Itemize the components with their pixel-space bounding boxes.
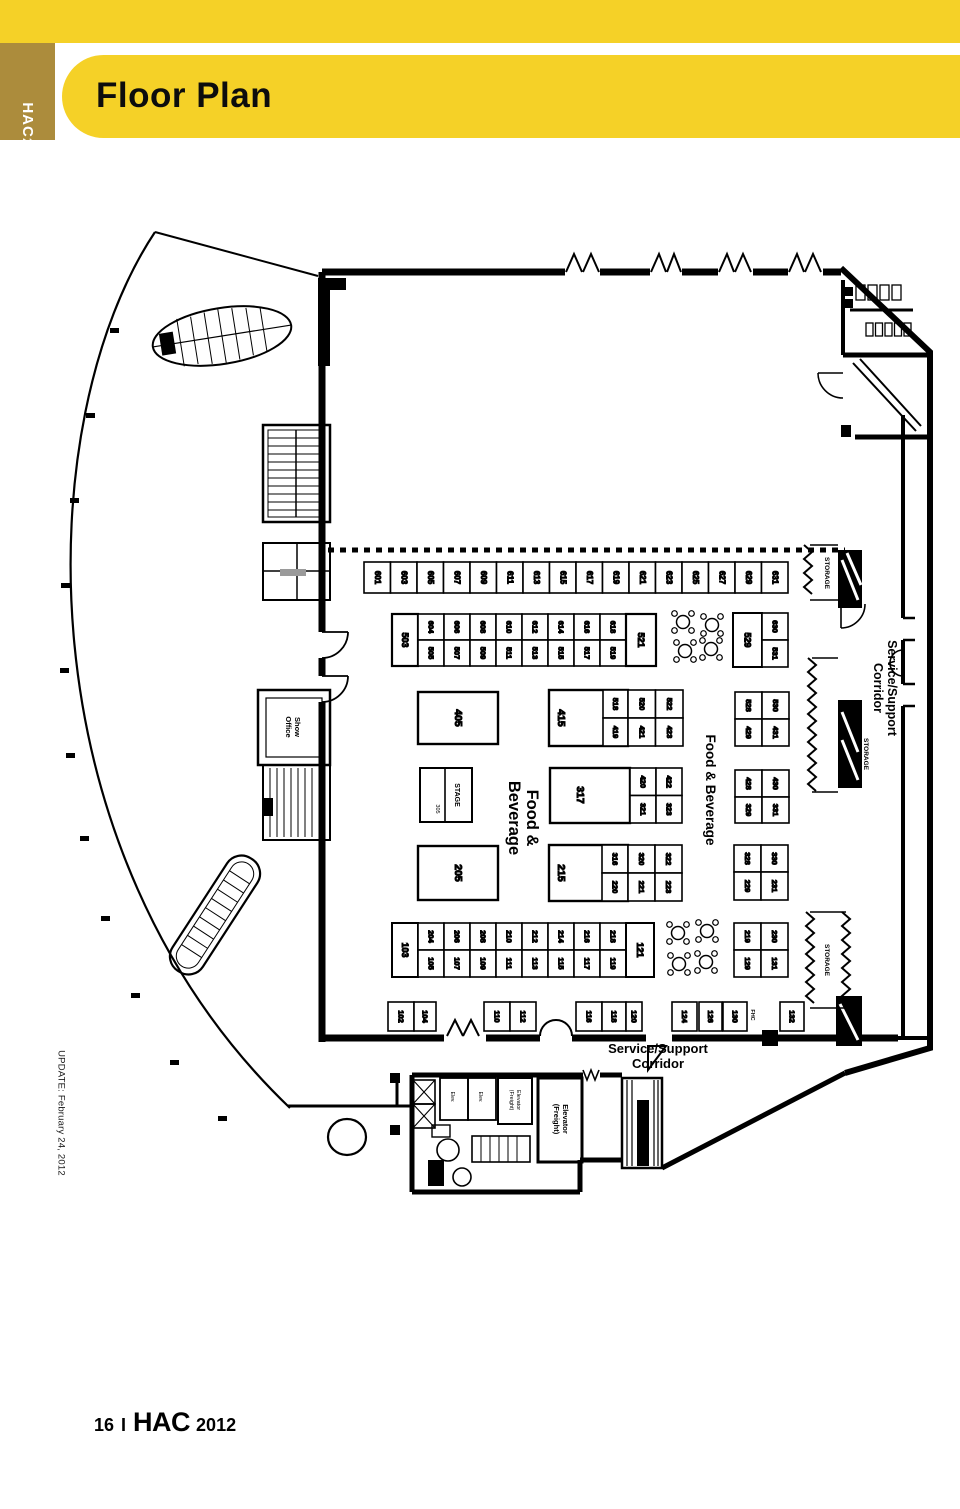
booth-number: 522 bbox=[665, 698, 674, 711]
machinery bbox=[428, 1125, 530, 1186]
booth-number: 630 bbox=[771, 620, 780, 633]
booth-number: 606 bbox=[453, 621, 462, 634]
booth-number: 231 bbox=[770, 880, 779, 893]
booth-number: 230 bbox=[770, 930, 779, 943]
chair-icon bbox=[696, 920, 702, 926]
booth-number: 617 bbox=[585, 571, 594, 585]
svg-text:Beverage: Beverage bbox=[505, 781, 523, 855]
table-icon bbox=[673, 958, 686, 971]
wall-column-tick bbox=[170, 1060, 179, 1065]
chair-icon bbox=[696, 937, 702, 943]
booth-number: 415 bbox=[555, 709, 567, 727]
booth-number: 621 bbox=[638, 571, 647, 585]
wall-column-tick bbox=[66, 753, 75, 758]
booth-number: 223 bbox=[664, 881, 673, 894]
booth-number: 221 bbox=[637, 881, 646, 894]
svg-text:Elevator: Elevator bbox=[515, 1090, 521, 1110]
booth-number: 613 bbox=[532, 571, 541, 585]
booth-number: 216 bbox=[583, 930, 592, 943]
booth-number: 616 bbox=[583, 621, 592, 634]
booth-number: 431 bbox=[771, 726, 780, 739]
wall-column-tick bbox=[61, 583, 70, 588]
table-icon bbox=[705, 643, 718, 656]
elevator-freight-label: Elevator (Freight) bbox=[552, 1104, 570, 1135]
booth-number: 104 bbox=[421, 1010, 430, 1023]
booth-number: 121 bbox=[635, 942, 645, 957]
chair-icon bbox=[685, 970, 691, 976]
booth-number: 420 bbox=[639, 775, 648, 788]
booth-number: 112 bbox=[519, 1010, 528, 1022]
booth-number: 605 bbox=[426, 571, 435, 585]
storage-zigzag bbox=[806, 912, 814, 1003]
ne-rooms bbox=[818, 280, 930, 437]
booth-number: 423 bbox=[665, 726, 674, 739]
wall-column-tick bbox=[60, 668, 69, 673]
chair-icon bbox=[689, 611, 695, 617]
chair-icon bbox=[667, 939, 673, 945]
booth-number: 604 bbox=[427, 621, 436, 634]
chair-icon bbox=[684, 922, 690, 928]
chair-icon bbox=[689, 628, 695, 634]
booth-number: 330 bbox=[770, 852, 779, 865]
booth-number: 219 bbox=[743, 930, 752, 943]
food-beverage-main-label: Food & Beverage bbox=[505, 781, 541, 855]
booth-number: 117 bbox=[583, 957, 592, 969]
door-coil bbox=[583, 1070, 599, 1080]
wall-column-tick bbox=[80, 836, 89, 841]
table-icon bbox=[700, 956, 713, 969]
booth-number: 629 bbox=[744, 571, 753, 585]
booth-number: 521 bbox=[636, 632, 646, 647]
bottom-service-block bbox=[390, 1073, 662, 1192]
booth-number: 531 bbox=[771, 647, 780, 660]
booth-number: 316 bbox=[611, 853, 620, 866]
svg-text:(Freight): (Freight) bbox=[552, 1104, 561, 1135]
stage-label: STAGE bbox=[453, 783, 460, 807]
booth-number: 208 bbox=[479, 930, 488, 943]
svg-text:Food & Beverage: Food & Beverage bbox=[703, 734, 718, 846]
side-tab-year: 2012 bbox=[20, 138, 34, 166]
booth-number: 625 bbox=[691, 571, 700, 585]
booth-number: 631 bbox=[770, 571, 779, 585]
booth-number: 612 bbox=[531, 621, 540, 634]
chair-icon bbox=[674, 640, 680, 646]
booth-number: 113 bbox=[531, 957, 540, 969]
booth-number: 615 bbox=[558, 571, 567, 585]
storage-label-bottom: STORAGE bbox=[823, 944, 830, 977]
booth-number: 130 bbox=[731, 1010, 740, 1023]
booth-number: 619 bbox=[611, 571, 620, 585]
storage-label-mid: STORAGE bbox=[862, 738, 869, 771]
booth-number: 430 bbox=[771, 777, 780, 790]
booth-number: 419 bbox=[611, 726, 620, 739]
booth-number: 205 bbox=[452, 864, 464, 882]
booth-number: 124 bbox=[680, 1010, 689, 1023]
booth-number: 329 bbox=[744, 804, 753, 817]
floor-column-circle bbox=[328, 1119, 366, 1155]
svg-text:FHC: FHC bbox=[749, 1009, 755, 1020]
table-icon bbox=[677, 616, 690, 629]
booth-number: 405 bbox=[452, 709, 464, 727]
nw-pillar bbox=[318, 278, 346, 366]
lobby-curved-wall bbox=[71, 232, 412, 1108]
svg-text:STORAGE: STORAGE bbox=[862, 738, 869, 771]
corridor-bottom-line1: Service/Support bbox=[608, 1041, 708, 1056]
storage-vestibules bbox=[836, 550, 862, 1046]
chair-icon bbox=[717, 655, 723, 661]
chair-icon bbox=[667, 922, 673, 928]
booth-number: 218 bbox=[609, 930, 618, 943]
booth-number: 220 bbox=[611, 881, 620, 894]
corridor-bottom-label: Service/Support Corridor bbox=[608, 1041, 708, 1071]
booth-number: 131 bbox=[770, 957, 779, 970]
booth-number: 212 bbox=[531, 930, 540, 943]
svg-text:305: 305 bbox=[434, 804, 440, 813]
floor-plan: 6016036056076096116136156176196216236256… bbox=[0, 0, 960, 1509]
chair-icon bbox=[712, 968, 718, 974]
booth-number: 505 bbox=[427, 647, 436, 660]
booth-number: 317 bbox=[574, 786, 586, 804]
chair-icon bbox=[701, 614, 707, 620]
corridor-bottom-line2: Corridor bbox=[632, 1056, 684, 1071]
chair-icon bbox=[701, 631, 707, 637]
booth-number: 520 bbox=[637, 698, 646, 711]
booth-number: 129 bbox=[743, 957, 752, 970]
booth-number: 515 bbox=[557, 647, 566, 660]
footer-brand: HAC bbox=[133, 1407, 190, 1438]
chair-icon bbox=[700, 638, 706, 644]
chair-icon bbox=[713, 920, 719, 926]
booth-number: 331 bbox=[771, 804, 780, 817]
booth-number: 132 bbox=[788, 1010, 797, 1023]
booth bbox=[550, 768, 630, 823]
booth-number: 507 bbox=[453, 647, 462, 660]
storage-label-top: STORAGE bbox=[823, 557, 830, 590]
booth-number: 328 bbox=[743, 852, 752, 865]
svg-text:STORAGE: STORAGE bbox=[823, 557, 830, 590]
svg-text:Show: Show bbox=[293, 717, 302, 737]
wall-column-tick bbox=[110, 328, 119, 333]
stage-block bbox=[420, 768, 472, 822]
booth-number: 511 bbox=[505, 647, 514, 659]
booth-number: 519 bbox=[609, 647, 618, 660]
wall-column-tick bbox=[86, 413, 95, 418]
booth-number: 601 bbox=[373, 571, 382, 585]
booth-number: 323 bbox=[665, 803, 674, 816]
escalator-oval bbox=[148, 297, 295, 374]
chair-icon bbox=[713, 937, 719, 943]
footer-page-number: 16 bbox=[94, 1415, 114, 1436]
elevator-freight-small-label: Elevator (Freight) bbox=[508, 1090, 521, 1111]
booth-number: 509 bbox=[479, 647, 488, 660]
svg-text:Food &: Food & bbox=[523, 790, 541, 847]
svg-text:(Freight): (Freight) bbox=[508, 1090, 514, 1111]
booths-layer: 6016036056076096116136156176196216236256… bbox=[364, 562, 804, 1031]
wall-column-tick bbox=[218, 1116, 227, 1121]
table-icon bbox=[679, 645, 692, 658]
corridor-right-line2: Corridor bbox=[871, 663, 885, 713]
show-office-label: Show Office bbox=[284, 716, 302, 737]
storage-zigzag bbox=[842, 912, 850, 1003]
booth-number: 513 bbox=[531, 647, 540, 660]
chair-icon bbox=[672, 611, 678, 617]
food-beverage-right-label: Food & Beverage bbox=[703, 734, 718, 846]
booth-number: 421 bbox=[637, 726, 646, 739]
booth-number: 428 bbox=[744, 777, 753, 790]
booth-number: 422 bbox=[665, 775, 674, 788]
booth-number: 107 bbox=[453, 957, 462, 970]
chair-icon bbox=[700, 655, 706, 661]
chair-icon bbox=[668, 970, 674, 976]
svg-text:Elev.: Elev. bbox=[477, 1092, 483, 1103]
booth-number: 110 bbox=[493, 1010, 502, 1022]
booth-number: 518 bbox=[611, 698, 620, 711]
elev-small-label-2: Elev. bbox=[477, 1092, 483, 1103]
chair-icon bbox=[718, 631, 724, 637]
lobby-escalator bbox=[163, 849, 266, 981]
booth-number: 517 bbox=[583, 647, 592, 660]
booth-number: 322 bbox=[664, 853, 673, 866]
booth-number: 105 bbox=[427, 957, 436, 970]
chair-icon bbox=[717, 638, 723, 644]
booth-number: 120 bbox=[630, 1010, 639, 1023]
booth-number: 603 bbox=[399, 571, 408, 585]
svg-text:STAGE: STAGE bbox=[453, 783, 460, 807]
svg-text:Elev.: Elev. bbox=[449, 1092, 455, 1103]
top-yellow-band bbox=[0, 0, 960, 43]
booth-number: 623 bbox=[664, 571, 673, 585]
page-footer: 16 I HAC 2012 bbox=[94, 1407, 236, 1438]
svg-text:Office: Office bbox=[284, 716, 293, 737]
booth-number: 229 bbox=[743, 880, 752, 893]
booth-number: 627 bbox=[717, 571, 726, 585]
chair-icon bbox=[695, 951, 701, 957]
booth-number: 215 bbox=[555, 864, 567, 882]
booth-number: 608 bbox=[479, 621, 488, 634]
booth-number: 115 bbox=[557, 957, 566, 969]
booth-number: 119 bbox=[609, 957, 618, 969]
table-icon bbox=[672, 927, 685, 940]
booth-number: 503 bbox=[400, 632, 410, 647]
west-doors bbox=[322, 632, 348, 702]
wall-column-tick bbox=[70, 498, 79, 503]
chair-icon bbox=[668, 953, 674, 959]
chair-icon bbox=[684, 939, 690, 945]
corridor-right-line1: Service/Support bbox=[885, 640, 899, 737]
chair-icon bbox=[718, 614, 724, 620]
booth-number: 111 bbox=[505, 958, 514, 970]
booth-number: 321 bbox=[639, 803, 648, 816]
page-title: Floor Plan bbox=[96, 76, 272, 116]
booth-number: 530 bbox=[771, 699, 780, 712]
chair-icon bbox=[672, 628, 678, 634]
booth-number: 214 bbox=[557, 930, 566, 943]
elev-small-label-1: Elev. bbox=[449, 1092, 455, 1103]
chair-icon bbox=[685, 953, 691, 959]
booth-number: 126 bbox=[706, 1010, 715, 1023]
booth-number: 614 bbox=[557, 621, 566, 634]
chair-icon bbox=[712, 951, 718, 957]
side-tab-text: HAC2012 bbox=[18, 102, 36, 165]
booth-number: 118 bbox=[610, 1010, 619, 1022]
chair-icon bbox=[691, 657, 697, 663]
booth-number: 429 bbox=[744, 726, 753, 739]
booth-number: 204 bbox=[427, 930, 436, 943]
booth-number: 109 bbox=[479, 957, 488, 970]
footer-separator: I bbox=[121, 1415, 126, 1436]
booth-number: 103 bbox=[400, 942, 410, 957]
update-note: UPDATE: February 24, 2012 bbox=[56, 1050, 67, 1176]
footer-year: 2012 bbox=[196, 1415, 236, 1436]
stage-number-label: 305 bbox=[434, 804, 440, 813]
booth-number: 320 bbox=[637, 853, 646, 866]
escalator-down-block bbox=[622, 1078, 662, 1168]
booth-number: 206 bbox=[453, 930, 462, 943]
booth-number: 528 bbox=[744, 699, 753, 712]
wall-column-tick bbox=[101, 916, 110, 921]
booth-number: 607 bbox=[452, 571, 461, 585]
booth-number: 116 bbox=[585, 1010, 594, 1022]
svg-text:STORAGE: STORAGE bbox=[823, 944, 830, 977]
booth-number: 610 bbox=[505, 621, 514, 634]
booth-number: 210 bbox=[505, 930, 514, 943]
storage-zigzag bbox=[808, 658, 816, 791]
chair-icon bbox=[674, 657, 680, 663]
side-tab: HAC2012 bbox=[0, 43, 55, 140]
booth-number: 102 bbox=[397, 1010, 406, 1023]
table-icon bbox=[701, 925, 714, 938]
chair-icon bbox=[691, 640, 697, 646]
svg-text:Elevator: Elevator bbox=[561, 1104, 570, 1134]
fhc-label: FHC bbox=[749, 1009, 755, 1020]
booth-number: 611 bbox=[505, 571, 514, 584]
wall-column-tick bbox=[131, 993, 140, 998]
table-icon bbox=[706, 619, 719, 632]
booth-number: 618 bbox=[609, 621, 618, 634]
booth-number: 529 bbox=[743, 632, 753, 647]
corridor-right-label: Service/Support Corridor bbox=[871, 640, 899, 737]
booth-number: 609 bbox=[479, 571, 488, 585]
chair-icon bbox=[695, 968, 701, 974]
title-bar: Floor Plan bbox=[62, 55, 960, 138]
side-tab-brand: HAC bbox=[19, 102, 36, 138]
